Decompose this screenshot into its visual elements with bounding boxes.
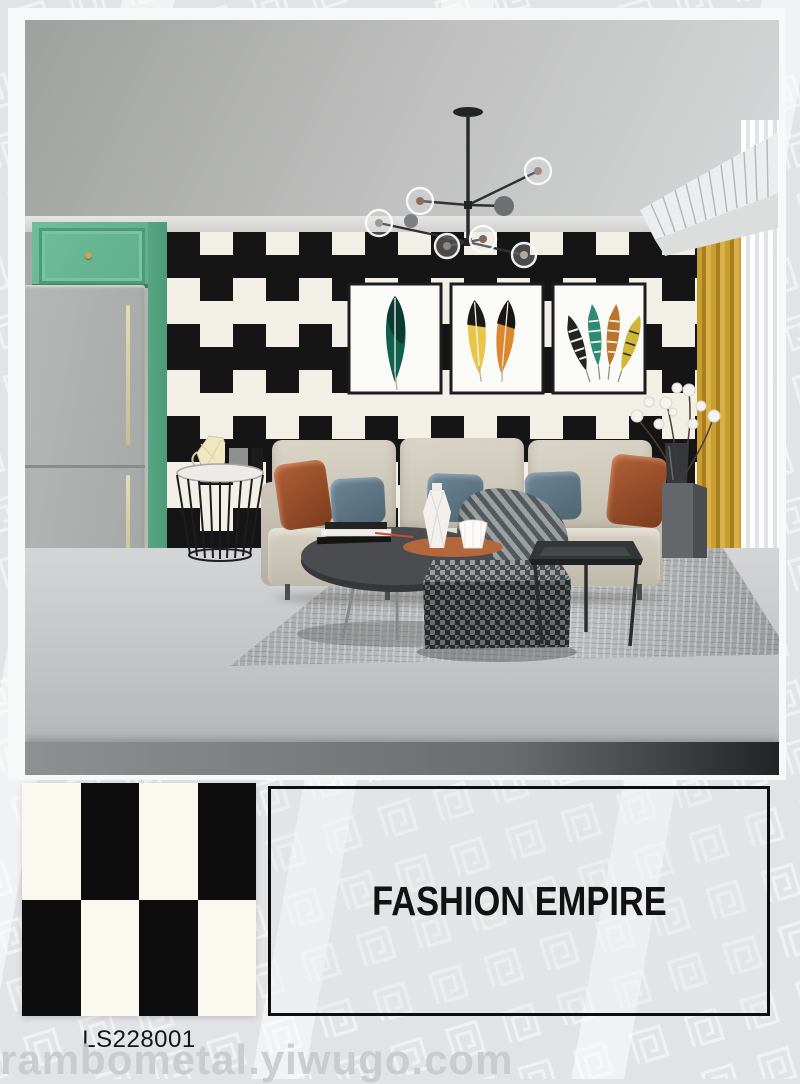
cotton-branch-pedestal <box>631 383 720 558</box>
houndstooth-ottoman <box>417 560 577 662</box>
swatch-cell <box>81 900 140 1017</box>
swatch-cell <box>198 783 257 900</box>
chandelier <box>366 107 551 267</box>
swatch-cell <box>22 900 81 1017</box>
swatch-cell <box>22 783 81 900</box>
swatch-cell <box>139 900 198 1017</box>
scene-details <box>25 20 779 775</box>
brand-name: FASHION EMPIRE <box>372 878 667 925</box>
pattern-swatch <box>22 783 256 1016</box>
brand-box: FASHION EMPIRE <box>268 786 770 1016</box>
living-room-photo <box>25 20 779 775</box>
wire-side-table <box>177 436 263 561</box>
product-image-page: { "product": { "code": "LS228001", "bran… <box>0 0 800 1079</box>
feather-art-frames <box>349 284 645 393</box>
watermark-text: rambometal.yiwugo.com <box>0 1036 513 1084</box>
swatch-cell <box>139 783 198 900</box>
ac-vent <box>640 132 778 256</box>
swatch-cell <box>81 783 140 900</box>
swatch-cell <box>198 900 257 1017</box>
